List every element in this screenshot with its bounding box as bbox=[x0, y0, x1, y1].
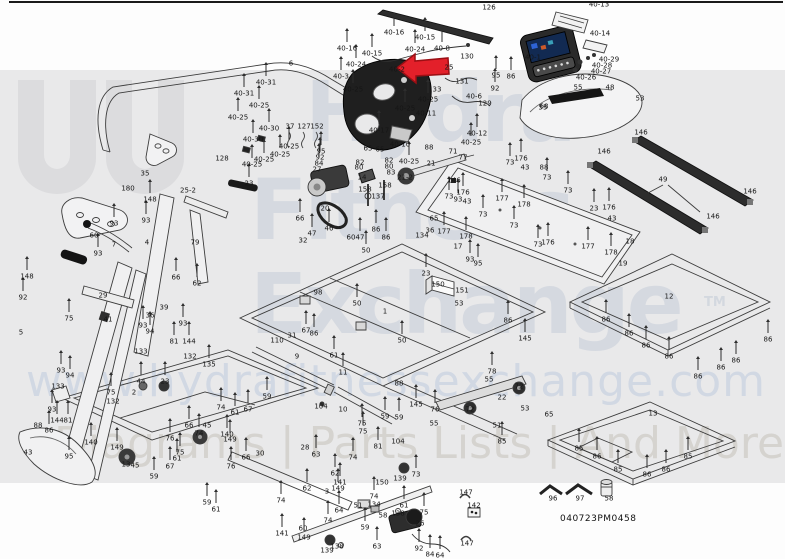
part-label: 27 bbox=[313, 167, 322, 174]
part-label: 19 bbox=[619, 261, 628, 268]
part-label: 1 bbox=[383, 309, 387, 316]
part-label: 17 bbox=[454, 244, 463, 251]
part-label: 63 bbox=[373, 544, 382, 551]
part-label: 5 bbox=[19, 330, 23, 337]
part-label: 59 bbox=[361, 525, 370, 532]
part-label: 129 bbox=[478, 101, 491, 108]
part-label: 85 bbox=[575, 446, 584, 453]
part-label: 63 bbox=[312, 452, 321, 459]
part-label: 40-25 bbox=[343, 87, 363, 94]
part-label: 138 bbox=[391, 511, 404, 518]
part-label: 96 bbox=[549, 496, 558, 503]
part-label: 59 bbox=[203, 500, 212, 507]
part-label: 14 bbox=[358, 175, 367, 182]
part-label: 21 bbox=[427, 161, 436, 168]
part-label: 58 bbox=[379, 513, 388, 520]
part-label: 86 bbox=[717, 365, 726, 372]
part-label: 98 bbox=[314, 290, 323, 297]
part-label: 75 bbox=[358, 421, 367, 428]
part-label: 93 bbox=[110, 221, 119, 228]
part-label: 86 bbox=[662, 467, 671, 474]
part-label: 58 bbox=[605, 496, 614, 503]
part-label: 74 bbox=[277, 498, 286, 505]
parts-diagram-page: Hydra Fitness Exchange TM www.hydrafitne… bbox=[0, 0, 785, 559]
part-label: 35 bbox=[141, 171, 150, 178]
part-label: 55 bbox=[430, 421, 439, 428]
part-label: 177 bbox=[495, 196, 508, 203]
part-label: 75 bbox=[359, 429, 368, 436]
part-label: 40-13 bbox=[589, 2, 609, 9]
part-label: 132 bbox=[106, 399, 119, 406]
part-label: 72 bbox=[466, 407, 475, 414]
part-label: 50 bbox=[353, 301, 362, 308]
part-label: 55 bbox=[558, 95, 567, 102]
part-label: 133 bbox=[51, 384, 64, 391]
part-label: 30 bbox=[256, 451, 265, 458]
part-label: 65 bbox=[545, 412, 554, 419]
part-label: 149 bbox=[110, 445, 123, 452]
part-label: 28 bbox=[301, 445, 310, 452]
part-label: 73 bbox=[510, 223, 519, 230]
part-label: 36 bbox=[146, 313, 155, 320]
part-label: 81 bbox=[374, 444, 383, 451]
part-label: 45 bbox=[203, 423, 212, 430]
part-label: 40-25 bbox=[395, 106, 415, 113]
part-label: 85 bbox=[614, 467, 623, 474]
part-label: 72 bbox=[515, 384, 524, 391]
part-label: 137 bbox=[371, 194, 384, 201]
part-label: 43 bbox=[608, 216, 617, 223]
part-label: 176 bbox=[602, 205, 615, 212]
part-label: 97 bbox=[576, 496, 585, 503]
part-label: 73 bbox=[445, 194, 454, 201]
part-label: 73 bbox=[479, 212, 488, 219]
part-label: 48 bbox=[606, 85, 615, 92]
part-label: 66 bbox=[242, 455, 251, 462]
part-label: 150 bbox=[375, 480, 388, 487]
part-label: 40-10 bbox=[390, 142, 410, 149]
part-label: 40-15 bbox=[362, 51, 382, 58]
part-label: 77 bbox=[459, 155, 468, 162]
part-label: 80 bbox=[355, 165, 364, 172]
part-label: 76 bbox=[166, 436, 175, 443]
part-label: 40-3 bbox=[333, 74, 349, 81]
part-label: 76 bbox=[227, 464, 236, 471]
part-label: 146 bbox=[634, 130, 647, 137]
part-label: 43 bbox=[463, 199, 472, 206]
part-label: 178 bbox=[604, 250, 617, 257]
part-label: 40-26 bbox=[576, 75, 596, 82]
part-label: 147 bbox=[460, 541, 473, 548]
part-label: 78 bbox=[488, 369, 497, 376]
part-label: 140 bbox=[84, 440, 97, 447]
part-label: 104 bbox=[314, 404, 327, 411]
part-label: 81 bbox=[170, 339, 179, 346]
part-label: 11 bbox=[339, 370, 348, 377]
part-label: 23 bbox=[245, 181, 254, 188]
part-label: 86 bbox=[507, 74, 516, 81]
part-label: 88 bbox=[395, 381, 404, 388]
part-label: 40-16 bbox=[384, 30, 404, 37]
part-label: 50 bbox=[362, 248, 371, 255]
part-label: 62 bbox=[331, 471, 340, 478]
part-label: 146 bbox=[706, 214, 719, 221]
part-label: 88 bbox=[540, 165, 549, 172]
part-label: 88 bbox=[425, 145, 434, 152]
part-label: 65 bbox=[364, 146, 373, 153]
part-label: 73 bbox=[506, 160, 515, 167]
part-label: 22 bbox=[498, 395, 507, 402]
part-label: 86 bbox=[382, 235, 391, 242]
part-label: 110 bbox=[270, 338, 283, 345]
part-label: 85 bbox=[684, 454, 693, 461]
part-labels-layer: 12640-1640-1540-2440-840-1640-1540-2440-… bbox=[0, 0, 785, 559]
part-label: 144 bbox=[50, 418, 63, 425]
part-label: 59 bbox=[263, 394, 272, 401]
part-label: 158 bbox=[358, 187, 371, 194]
part-label: 13 bbox=[649, 411, 658, 418]
part-label: 29 bbox=[99, 293, 108, 300]
part-label: 146 bbox=[743, 189, 756, 196]
part-label: 53 bbox=[636, 96, 645, 103]
part-label: 86 bbox=[732, 358, 741, 365]
part-label: 60 bbox=[299, 526, 308, 533]
part-label: 40-31 bbox=[256, 80, 276, 87]
part-label: 86 bbox=[593, 454, 602, 461]
part-label: 10 bbox=[339, 407, 348, 414]
diagram-code: 040723PM0458 bbox=[560, 514, 636, 524]
part-label: 86 bbox=[764, 337, 773, 344]
part-label: 135 bbox=[202, 362, 215, 369]
part-label: 40-25 bbox=[399, 159, 419, 166]
part-label: 40-25 bbox=[228, 115, 248, 122]
part-label: 93 bbox=[454, 197, 463, 204]
part-label: 138 bbox=[330, 544, 343, 551]
part-label: 83 bbox=[387, 170, 396, 177]
part-label: 132 bbox=[183, 354, 196, 361]
part-label: 45 bbox=[131, 463, 140, 470]
part-label: 40-16 bbox=[337, 46, 357, 53]
part-label: 75 bbox=[107, 390, 116, 397]
part-label: 76 bbox=[431, 407, 440, 414]
part-label: 37 bbox=[286, 124, 295, 131]
part-label: 53 bbox=[521, 406, 530, 413]
part-label: 51 bbox=[493, 423, 502, 430]
part-label: 93 bbox=[94, 251, 103, 258]
part-label: 59 bbox=[381, 414, 390, 421]
part-label: 61 bbox=[231, 410, 240, 417]
part-label: 40-30 bbox=[259, 126, 279, 133]
part-label: 20 bbox=[321, 206, 330, 213]
part-label: 31 bbox=[288, 333, 297, 340]
part-label: 94 bbox=[66, 373, 75, 380]
part-label: 86 bbox=[372, 227, 381, 234]
part-label: 67 bbox=[244, 407, 253, 414]
part-label: 3 bbox=[325, 489, 329, 496]
part-label: 75 bbox=[65, 316, 74, 323]
part-label: 152 bbox=[310, 124, 323, 131]
part-label: 40-15 bbox=[415, 35, 435, 42]
part-label: 150 bbox=[431, 282, 444, 289]
part-label: 21-2 bbox=[397, 175, 413, 182]
part-label: 92 bbox=[491, 86, 500, 93]
part-label: 74 bbox=[217, 405, 226, 412]
part-label: 86 bbox=[310, 331, 319, 338]
part-label: 65 bbox=[430, 216, 439, 223]
part-label: 149 bbox=[331, 486, 344, 493]
part-label: 23 bbox=[590, 206, 599, 213]
part-label: 134 bbox=[415, 233, 428, 240]
part-label: 40-25 bbox=[418, 97, 438, 104]
part-label: 139 bbox=[393, 476, 406, 483]
part-label: 59 bbox=[150, 474, 159, 481]
part-label: 61 bbox=[212, 507, 221, 514]
part-label: 148 bbox=[20, 274, 33, 281]
part-label: 13 bbox=[122, 462, 131, 469]
part-label: 25-2 bbox=[180, 188, 196, 195]
part-label: 55 bbox=[574, 85, 583, 92]
part-label: 177 bbox=[437, 229, 450, 236]
part-label: 178 bbox=[459, 234, 472, 241]
part-label: 86 bbox=[602, 317, 611, 324]
part-label: 40-31 bbox=[234, 91, 254, 98]
part-label: 176 bbox=[456, 190, 469, 197]
part-label: 145 bbox=[518, 336, 531, 343]
part-label: 151 bbox=[455, 288, 468, 295]
part-label: 41 bbox=[104, 317, 113, 324]
part-label: 40-8 bbox=[434, 46, 450, 53]
part-label: 60 bbox=[347, 235, 356, 242]
part-label: 55 bbox=[539, 105, 548, 112]
part-label: 176 bbox=[541, 240, 554, 247]
part-label: 4 bbox=[145, 240, 149, 247]
part-label: 142 bbox=[467, 503, 480, 510]
part-label: 180 bbox=[121, 186, 134, 193]
part-label: 147 bbox=[459, 490, 472, 497]
part-label: 40-2 bbox=[389, 67, 405, 74]
part-label: 40-24 bbox=[405, 47, 425, 54]
part-label: 61 bbox=[173, 456, 182, 463]
part-label: 40-1 bbox=[525, 55, 541, 62]
part-label: 39 bbox=[160, 305, 169, 312]
part-label: 67 bbox=[166, 464, 175, 471]
part-label: 176 bbox=[514, 156, 527, 163]
part-label: 7 bbox=[112, 242, 116, 249]
part-label: 86 bbox=[625, 331, 634, 338]
part-label: 51 bbox=[354, 503, 363, 510]
part-label: 66 bbox=[185, 423, 194, 430]
part-label: 86 bbox=[665, 354, 674, 361]
part-label: 66 bbox=[296, 216, 305, 223]
part-label: 95 bbox=[474, 261, 483, 268]
part-label: 60 bbox=[90, 233, 99, 240]
part-label: 141 bbox=[275, 531, 288, 538]
part-label: 92 bbox=[415, 546, 424, 553]
part-label: 133 bbox=[134, 349, 147, 356]
part-label: 86 bbox=[45, 428, 54, 435]
part-label: 40-24 bbox=[346, 62, 366, 69]
part-label: 71 bbox=[449, 149, 458, 156]
part-label: 47 bbox=[308, 231, 317, 238]
part-label: 62 bbox=[193, 281, 202, 288]
part-label: 75 bbox=[420, 510, 429, 517]
part-label: 25 bbox=[445, 65, 454, 72]
part-label: 86 bbox=[504, 318, 513, 325]
part-label: 50 bbox=[398, 338, 407, 345]
part-label: 23 bbox=[161, 379, 170, 386]
part-label: 177 bbox=[581, 244, 594, 251]
part-label: 49 bbox=[659, 177, 668, 184]
part-label: 144 bbox=[182, 339, 195, 346]
part-label: 149 bbox=[223, 437, 236, 444]
part-label: 128 bbox=[215, 156, 228, 163]
part-label: 33 bbox=[433, 87, 442, 94]
part-label: 134 bbox=[367, 502, 380, 509]
part-label: 148 bbox=[143, 197, 156, 204]
part-label: 85 bbox=[498, 439, 507, 446]
part-label: 43 bbox=[521, 165, 530, 172]
part-label: 23 bbox=[422, 271, 431, 278]
part-label: 40-17 bbox=[369, 128, 389, 135]
part-label: 86 bbox=[642, 343, 651, 350]
part-label: 93 bbox=[48, 407, 57, 414]
part-label: 86 bbox=[643, 472, 652, 479]
part-label: 18 bbox=[626, 239, 635, 246]
part-label: 149 bbox=[297, 535, 310, 542]
part-label: 88 bbox=[34, 423, 43, 430]
part-label: 73 bbox=[412, 472, 421, 479]
part-label: 79 bbox=[191, 240, 200, 247]
part-label: 73 bbox=[564, 188, 573, 195]
part-label: 40-12 bbox=[467, 131, 487, 138]
part-label: 26 bbox=[416, 521, 425, 528]
part-label: 40-25 bbox=[279, 144, 299, 151]
part-label: 62 bbox=[303, 486, 312, 493]
part-label: 65 bbox=[376, 147, 385, 154]
part-label: 55 bbox=[485, 377, 494, 384]
part-label: 104 bbox=[391, 439, 404, 446]
part-label: 93 bbox=[179, 321, 188, 328]
part-label: 61 bbox=[330, 353, 339, 360]
part-label: 158 bbox=[378, 183, 391, 190]
part-label: 40-25 bbox=[461, 140, 481, 147]
part-label: 95 bbox=[492, 73, 501, 80]
part-label: 40-25 bbox=[249, 103, 269, 110]
part-label: 6 bbox=[289, 61, 293, 68]
part-label: 40-11 bbox=[416, 111, 436, 118]
part-label: 131 bbox=[455, 79, 468, 86]
part-label: 93 bbox=[57, 368, 66, 375]
part-label: 73 bbox=[543, 175, 552, 182]
part-label: 43 bbox=[24, 450, 33, 457]
part-label: 178 bbox=[517, 202, 530, 209]
part-label: 74 bbox=[349, 455, 358, 462]
part-label: 46 bbox=[325, 226, 334, 233]
part-label: 146 bbox=[597, 149, 610, 156]
part-label: 47 bbox=[356, 235, 365, 242]
part-label: 84 bbox=[426, 552, 435, 559]
part-label: 74 bbox=[370, 494, 379, 501]
part-label: 95 bbox=[65, 454, 74, 461]
part-label: 74 bbox=[324, 518, 333, 525]
part-label: 81 bbox=[64, 418, 73, 425]
part-label: 40-30 bbox=[243, 137, 263, 144]
part-label: 2 bbox=[132, 390, 136, 397]
part-label: 64 bbox=[335, 508, 344, 515]
part-label: 146 bbox=[447, 178, 460, 185]
part-label: 93 bbox=[142, 218, 151, 225]
part-label: 59 bbox=[395, 415, 404, 422]
part-label: 127 bbox=[297, 124, 310, 131]
part-label: 86 bbox=[694, 374, 703, 381]
part-label: 92 bbox=[19, 295, 28, 302]
part-label: 64 bbox=[436, 553, 445, 559]
part-label: 130 bbox=[460, 54, 473, 61]
part-label: 12 bbox=[665, 294, 674, 301]
part-label: 54 bbox=[73, 255, 82, 262]
part-label: 40-25 bbox=[242, 162, 262, 169]
part-label: 53 bbox=[455, 301, 464, 308]
part-label: 61 bbox=[400, 503, 409, 510]
part-label: 44 bbox=[137, 379, 146, 386]
part-label: 32 bbox=[299, 238, 308, 245]
part-label: 66 bbox=[172, 275, 181, 282]
part-label: 40-14 bbox=[590, 31, 610, 38]
part-label: 94 bbox=[146, 329, 155, 336]
part-label: 74 bbox=[195, 431, 204, 438]
part-label: 126 bbox=[482, 5, 495, 12]
part-label: 145 bbox=[409, 402, 422, 409]
part-label: 9 bbox=[295, 354, 299, 361]
